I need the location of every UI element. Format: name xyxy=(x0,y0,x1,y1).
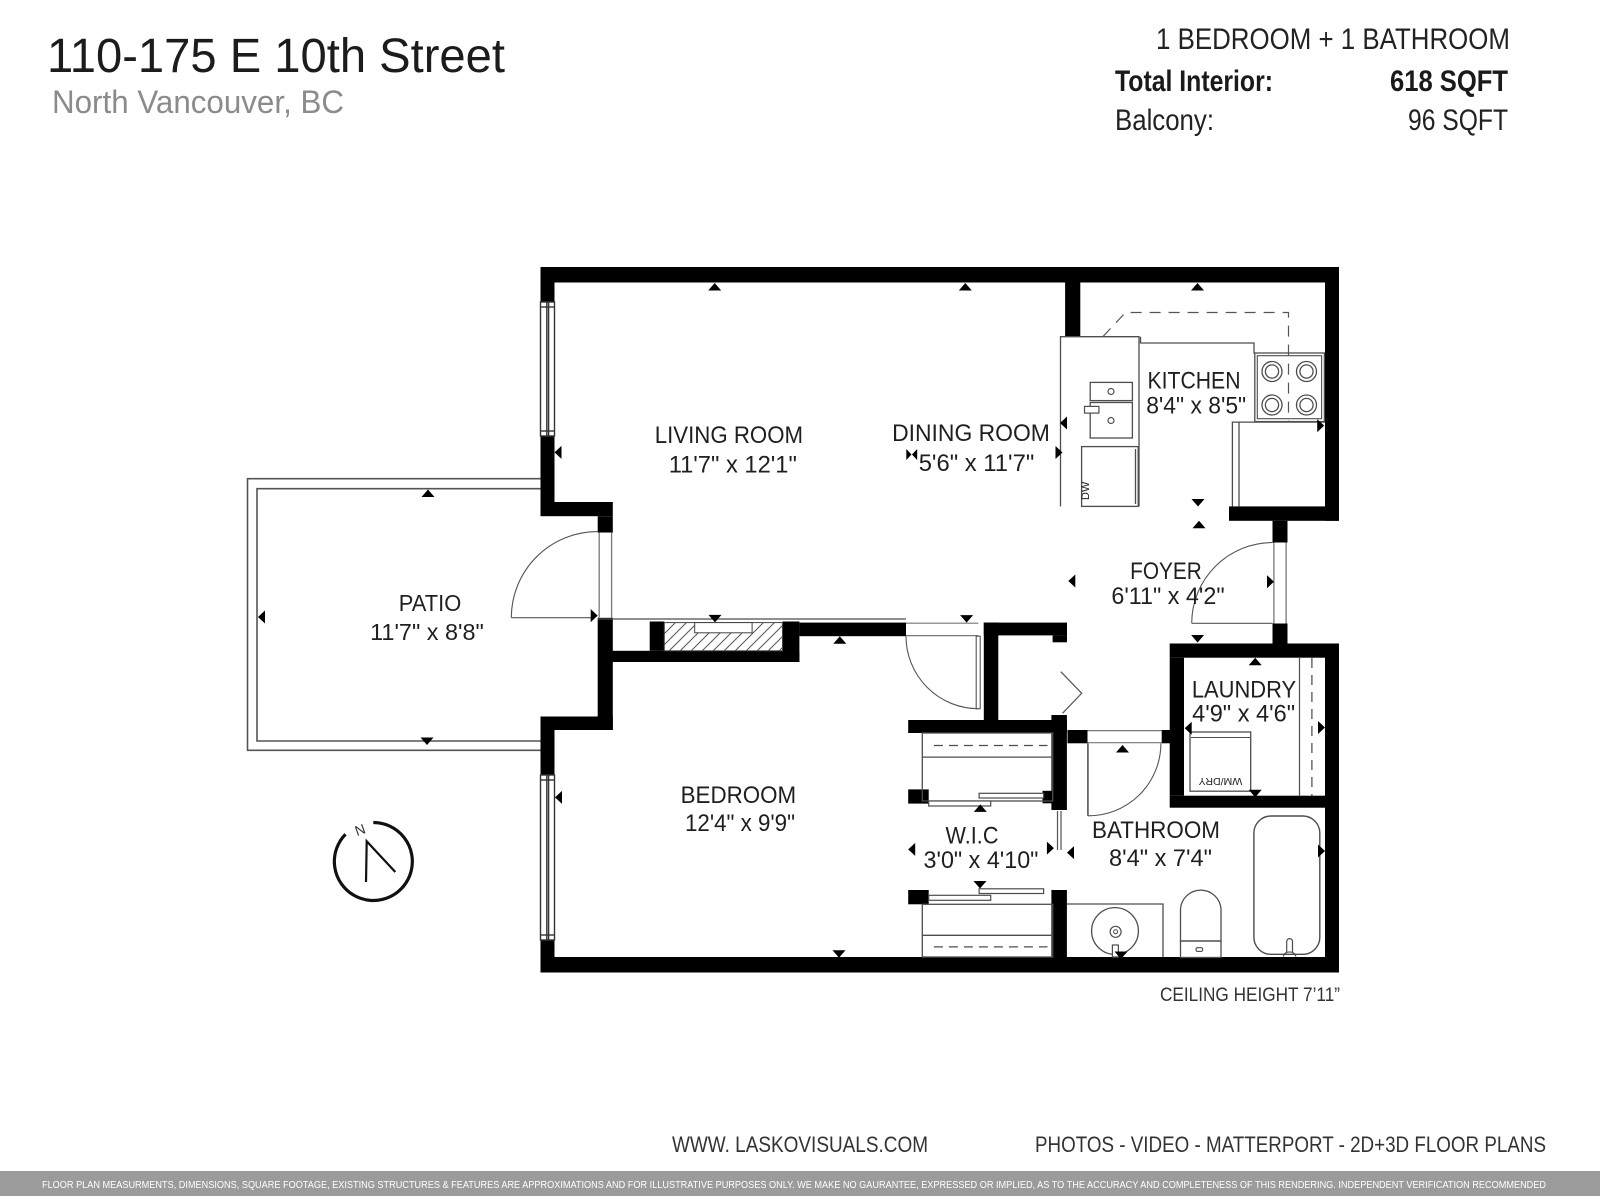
svg-text:DW: DW xyxy=(1080,481,1092,500)
svg-text:8'4" x 8'5": 8'4" x 8'5" xyxy=(1146,393,1246,420)
svg-text:BATHROOM: BATHROOM xyxy=(1092,817,1220,844)
svg-text:1 BEDROOM + 1 BATHROOM: 1 BEDROOM + 1 BATHROOM xyxy=(1156,23,1510,56)
svg-text:12'4" x 9'9": 12'4" x 9'9" xyxy=(685,810,795,837)
svg-text:618 SQFT: 618 SQFT xyxy=(1390,65,1508,98)
svg-text:6'11" x 4'2": 6'11" x 4'2" xyxy=(1111,583,1224,610)
svg-text:LAUNDRY: LAUNDRY xyxy=(1192,677,1296,704)
svg-text:5'6" x 11'7": 5'6" x 11'7" xyxy=(919,450,1035,477)
svg-text:KITCHEN: KITCHEN xyxy=(1148,368,1241,395)
svg-text:110-175 E 10th Street: 110-175 E 10th Street xyxy=(47,30,505,83)
svg-text:LIVING ROOM: LIVING ROOM xyxy=(655,422,803,449)
svg-text:PHOTOS - VIDEO - MATTERPORT -: PHOTOS - VIDEO - MATTERPORT - 2D+3D FLOO… xyxy=(1035,1132,1546,1157)
svg-text:FOYER: FOYER xyxy=(1130,558,1202,585)
svg-text:WWW. LASKOVISUALS.COM: WWW. LASKOVISUALS.COM xyxy=(672,1132,928,1157)
svg-text:11'7" x 8'8": 11'7" x 8'8" xyxy=(370,619,484,645)
svg-text:Balcony:: Balcony: xyxy=(1115,104,1214,137)
svg-text:96 SQFT: 96 SQFT xyxy=(1408,104,1508,137)
svg-text:DINING ROOM: DINING ROOM xyxy=(892,420,1050,447)
svg-text:8'4" x 7'4": 8'4" x 7'4" xyxy=(1109,845,1212,872)
svg-text:3'0" x 4'10": 3'0" x 4'10" xyxy=(924,847,1039,874)
svg-text:PATIO: PATIO xyxy=(399,590,462,616)
svg-text:11'7" x 12'1": 11'7" x 12'1" xyxy=(669,452,797,479)
svg-text:Total Interior:: Total Interior: xyxy=(1115,65,1273,98)
svg-text:WM/DRY: WM/DRY xyxy=(1199,775,1243,787)
svg-text:W.I.C: W.I.C xyxy=(946,823,999,850)
svg-text:CEILING HEIGHT 7’11”: CEILING HEIGHT 7’11” xyxy=(1160,985,1340,1006)
svg-text:FLOOR PLAN MEASURMENTS, DIMENS: FLOOR PLAN MEASURMENTS, DIMENSIONS, SQUA… xyxy=(42,1179,1546,1191)
svg-text:BEDROOM: BEDROOM xyxy=(681,782,797,809)
svg-text:North Vancouver, BC: North Vancouver, BC xyxy=(52,84,344,120)
svg-text:4'9" x 4'6": 4'9" x 4'6" xyxy=(1192,701,1295,728)
